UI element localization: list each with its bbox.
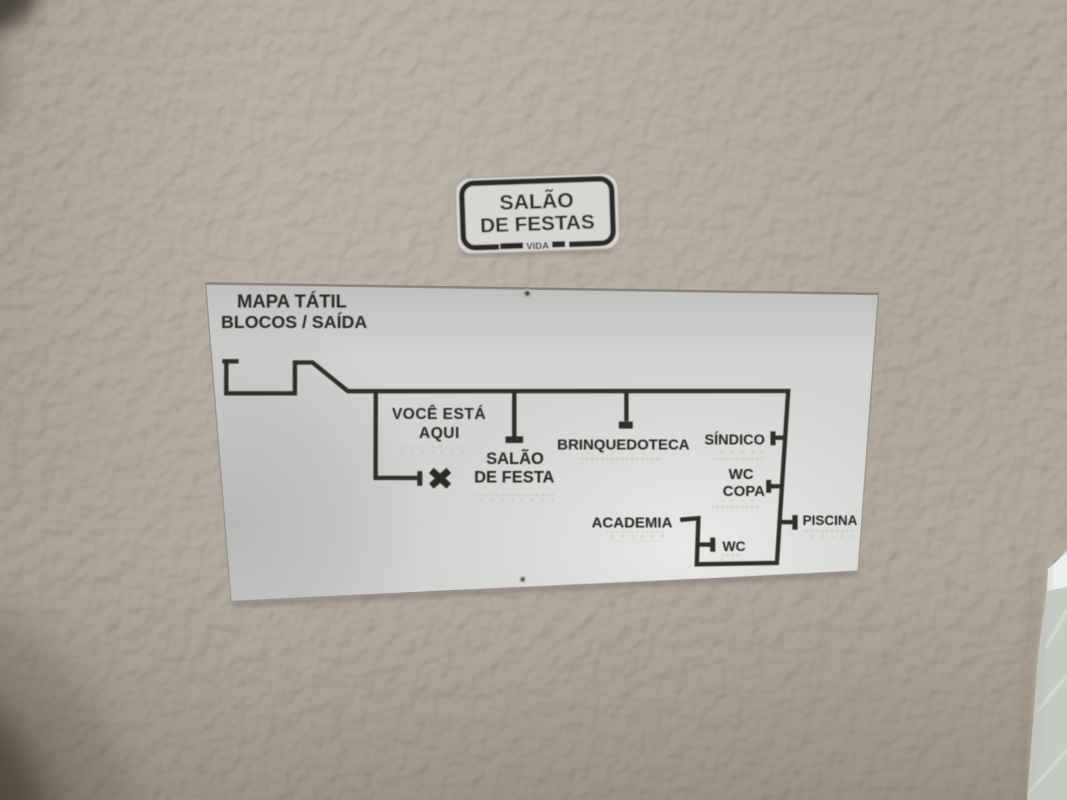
svg-text:MAPA TÁTIL: MAPA TÁTIL (237, 291, 347, 312)
svg-text:SALÃO: SALÃO (486, 448, 544, 468)
svg-text:AQUI: AQUI (419, 425, 460, 442)
svg-text:BLOCOS / SAÍDA: BLOCOS / SAÍDA (221, 311, 367, 332)
svg-text:WC: WC (729, 466, 754, 483)
svg-text:DE FESTA: DE FESTA (474, 468, 554, 486)
svg-text:COPA: COPA (723, 483, 765, 500)
svg-text:BRINQUEDOTECA: BRINQUEDOTECA (557, 436, 690, 453)
svg-text:VIDA: VIDA (526, 241, 549, 253)
svg-text:PISCINA: PISCINA (803, 513, 858, 528)
svg-text:WC: WC (722, 538, 745, 554)
svg-text:ACADEMIA: ACADEMIA (592, 515, 673, 532)
svg-text:DE FESTAS: DE FESTAS (480, 211, 595, 238)
svg-text:VOCÊ ESTÁ: VOCÊ ESTÁ (392, 405, 486, 423)
svg-text:SÍNDICO: SÍNDICO (704, 432, 764, 449)
